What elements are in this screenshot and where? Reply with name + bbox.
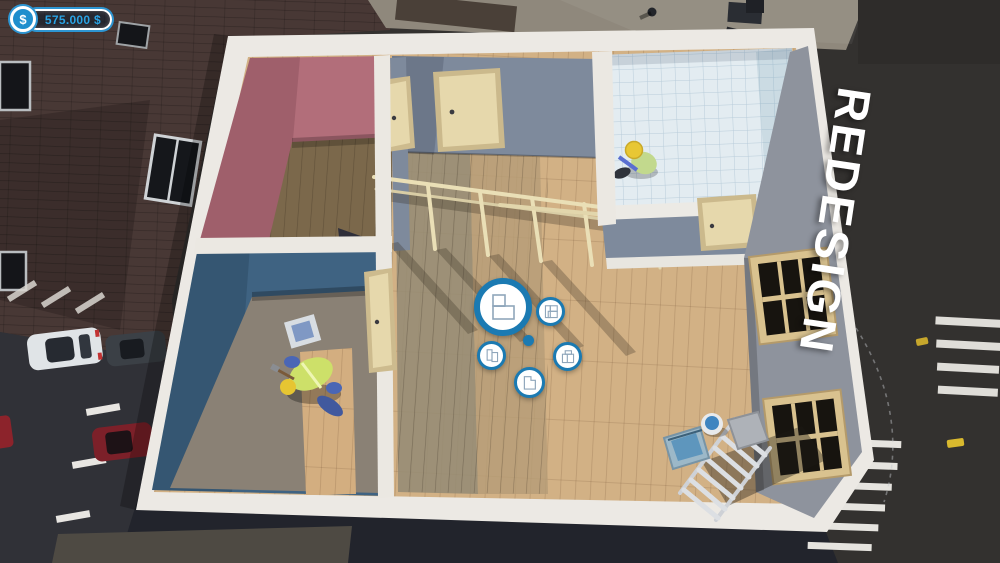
door-handle [375,320,379,324]
door-handle [710,224,714,228]
hard-hat [626,142,643,159]
radial-menu-center-dot[interactable] [523,335,534,346]
radial-option-annex[interactable] [553,342,582,371]
asphalt-top-right [858,0,1000,64]
dollar-coin-icon: $ [10,6,36,32]
floorplan-l-shape-icon [520,373,539,392]
door-handle [392,116,396,120]
door-handle [450,110,455,115]
door-blue-room [364,268,397,373]
money-amount: 575.000 $ [45,13,101,27]
crate [746,0,764,13]
hard-hat [280,379,296,395]
radial-option-l-shape[interactable] [514,367,545,398]
wall-band-horizontal [194,236,392,254]
money-pill: 575.000 $ [26,9,112,30]
radial-option-sections[interactable] [536,297,565,326]
floorplan-sections-icon [542,303,560,321]
radial-option-two-rooms[interactable] [477,341,506,370]
door-north [433,68,505,152]
floorplan-two-rooms-icon [483,347,501,365]
floorplan-annex-icon [559,348,577,366]
game-viewport: 575.000 $ $ REDESIGN [0,0,1000,563]
floorplan-room-icon [486,290,520,324]
radial-option-main[interactable] [474,278,532,336]
